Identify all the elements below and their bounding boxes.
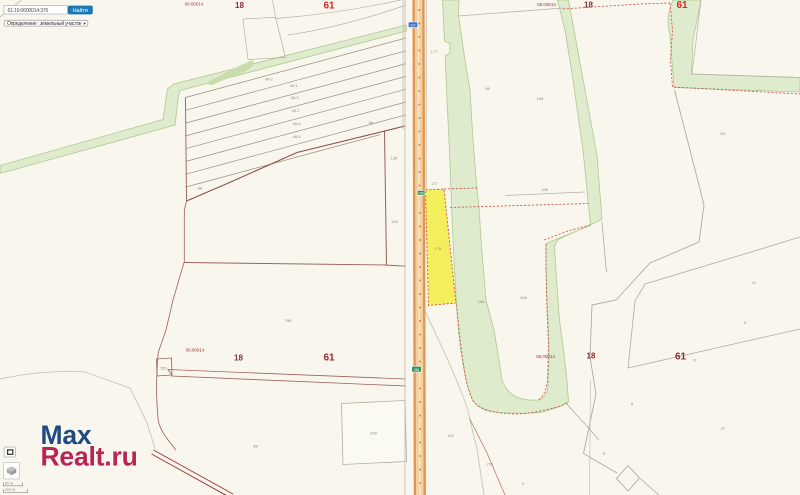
svg-text:74: 74 <box>751 280 756 285</box>
svg-text:119: 119 <box>447 433 454 438</box>
svg-text:18: 18 <box>234 354 243 363</box>
svg-text:18: 18 <box>235 1 244 10</box>
svg-text:268: 268 <box>414 368 420 372</box>
svg-text:48-3: 48-3 <box>290 95 299 100</box>
svg-text:06:00014: 06:00014 <box>537 2 556 7</box>
svg-text:88: 88 <box>198 186 203 191</box>
svg-text:200 ft: 200 ft <box>5 487 16 492</box>
svg-text:61: 61 <box>323 353 335 364</box>
svg-text:88: 88 <box>253 444 258 449</box>
svg-text:48-5: 48-5 <box>292 134 301 139</box>
svg-text:61:16:0600014:376: 61:16:0600014:376 <box>8 8 49 14</box>
svg-text:Realt.ru: Realt.ru <box>41 442 138 472</box>
svg-text:06:00014: 06:00014 <box>186 348 205 353</box>
svg-text:731: 731 <box>487 462 494 467</box>
svg-text:98: 98 <box>485 86 490 91</box>
svg-text:50 м: 50 м <box>5 481 14 486</box>
svg-text:48-1: 48-1 <box>289 83 298 88</box>
svg-text:196: 196 <box>537 96 544 101</box>
svg-text:177: 177 <box>431 181 438 186</box>
svg-text:06:00014: 06:00014 <box>536 354 555 359</box>
svg-text:48-7: 48-7 <box>291 108 300 113</box>
svg-text:134: 134 <box>391 219 398 224</box>
svg-text:505: 505 <box>161 367 167 371</box>
svg-text:48-2: 48-2 <box>265 77 274 82</box>
svg-text:177: 177 <box>431 49 438 54</box>
svg-text:Найти: Найти <box>73 7 88 14</box>
svg-text:68: 68 <box>369 120 374 125</box>
svg-text:Определение : земельный участо: Определение : земельный участок <box>7 20 82 27</box>
svg-text:61: 61 <box>675 352 687 363</box>
svg-text:18: 18 <box>587 352 596 361</box>
svg-text:18: 18 <box>584 1 593 10</box>
svg-text:347: 347 <box>410 23 416 27</box>
svg-text:246: 246 <box>520 295 527 300</box>
svg-text:61: 61 <box>323 1 335 12</box>
svg-text:61: 61 <box>676 0 688 11</box>
svg-text:198: 198 <box>541 187 548 192</box>
svg-text:37: 37 <box>721 426 726 431</box>
svg-text:249: 249 <box>370 431 377 436</box>
svg-text:268: 268 <box>418 191 424 195</box>
svg-text:741: 741 <box>719 131 726 136</box>
svg-text:136: 136 <box>391 156 398 161</box>
svg-text:178: 178 <box>435 246 442 251</box>
svg-text:48-6: 48-6 <box>292 121 301 126</box>
svg-text:146: 146 <box>478 299 485 304</box>
svg-text:798: 798 <box>285 318 292 323</box>
svg-text:06:00014: 06:00014 <box>185 2 204 7</box>
